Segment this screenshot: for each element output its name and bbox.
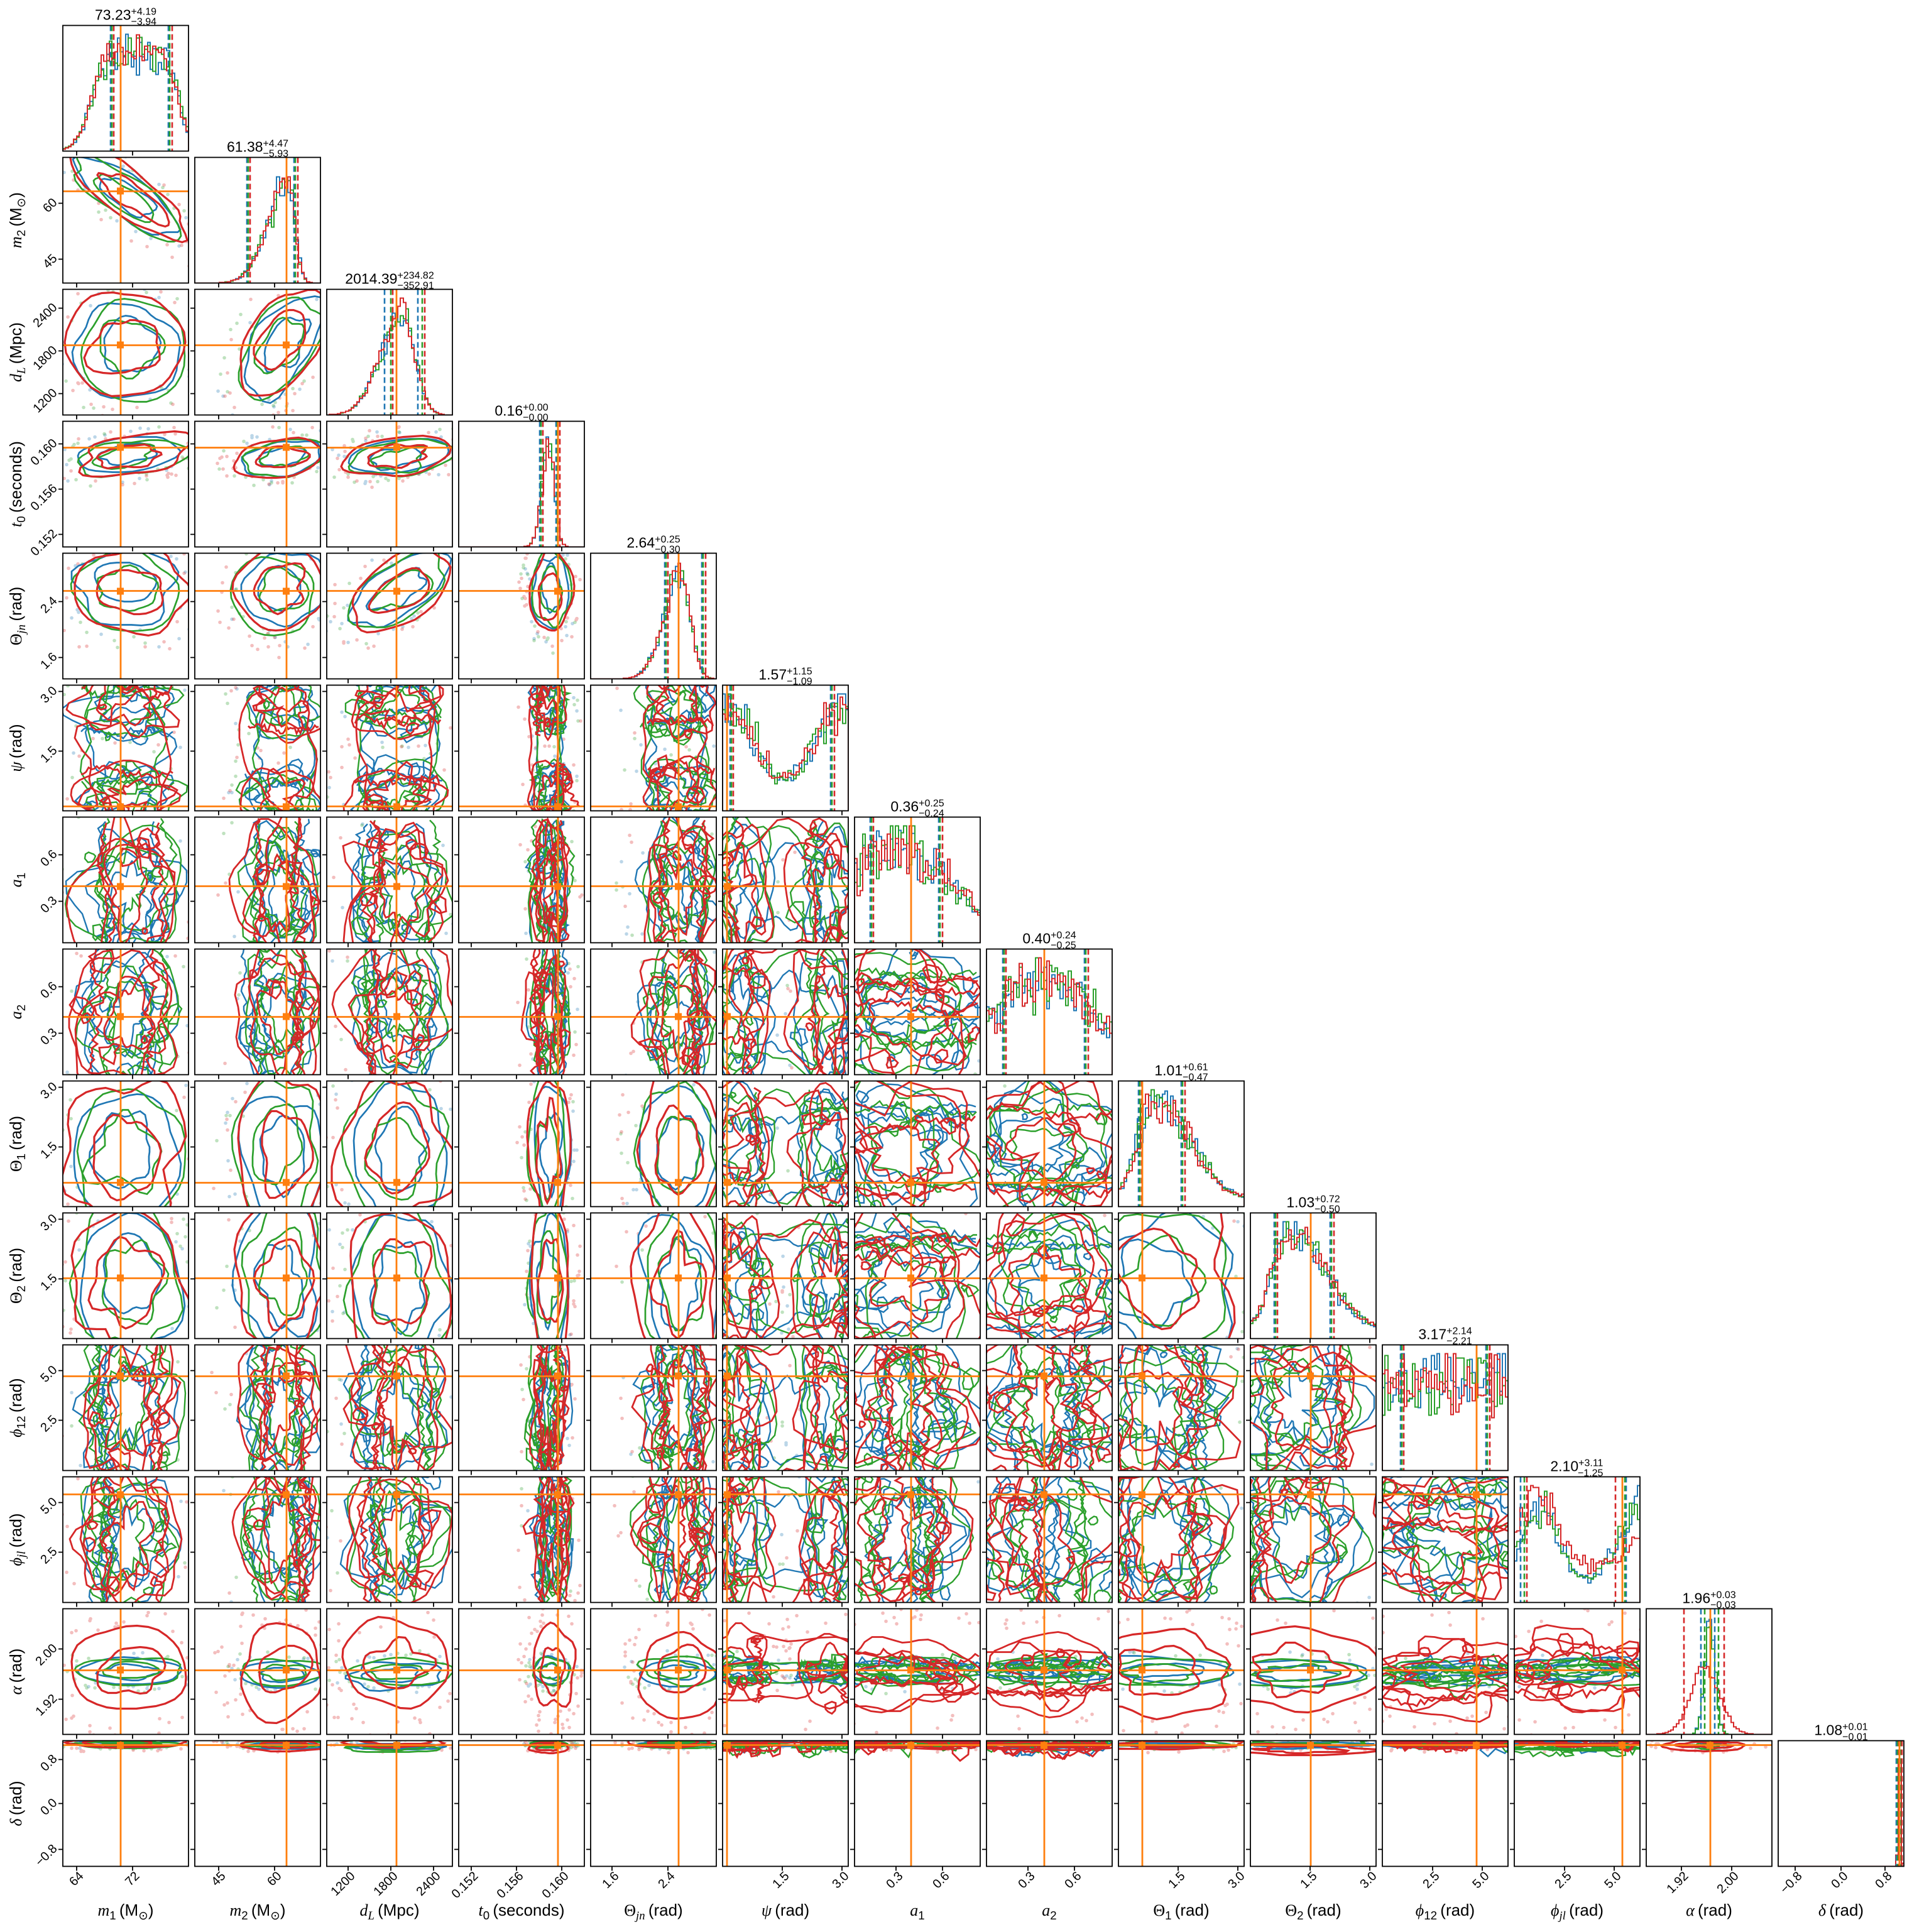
svg-text:ψ (rad): ψ (rad) <box>6 724 25 772</box>
svg-text:Θ1 (rad): Θ1 (rad) <box>1153 1901 1209 1922</box>
svg-text:Θ2 (rad): Θ2 (rad) <box>6 1248 28 1304</box>
svg-text:δ (rad): δ (rad) <box>6 1781 25 1826</box>
svg-text:δ (rad): δ (rad) <box>1818 1901 1864 1919</box>
svg-text:Θjn (rad): Θjn (rad) <box>624 1901 682 1923</box>
svg-text:α (rad): α (rad) <box>1686 1901 1732 1919</box>
svg-text:ϕjl (rad): ϕjl (rad) <box>6 1514 28 1566</box>
svg-text:t0 (seconds): t0 (seconds) <box>6 441 28 527</box>
svg-text:Θjn (rad): Θjn (rad) <box>6 587 28 645</box>
svg-text:ϕjl (rad): ϕjl (rad) <box>1551 1901 1604 1923</box>
svg-text:Θ2 (rad): Θ2 (rad) <box>1285 1901 1341 1922</box>
svg-text:Θ1 (rad): Θ1 (rad) <box>6 1116 28 1172</box>
svg-text:ψ (rad): ψ (rad) <box>762 1901 809 1919</box>
svg-text:α (rad): α (rad) <box>6 1649 25 1695</box>
svg-text:t0 (seconds): t0 (seconds) <box>478 1901 564 1922</box>
